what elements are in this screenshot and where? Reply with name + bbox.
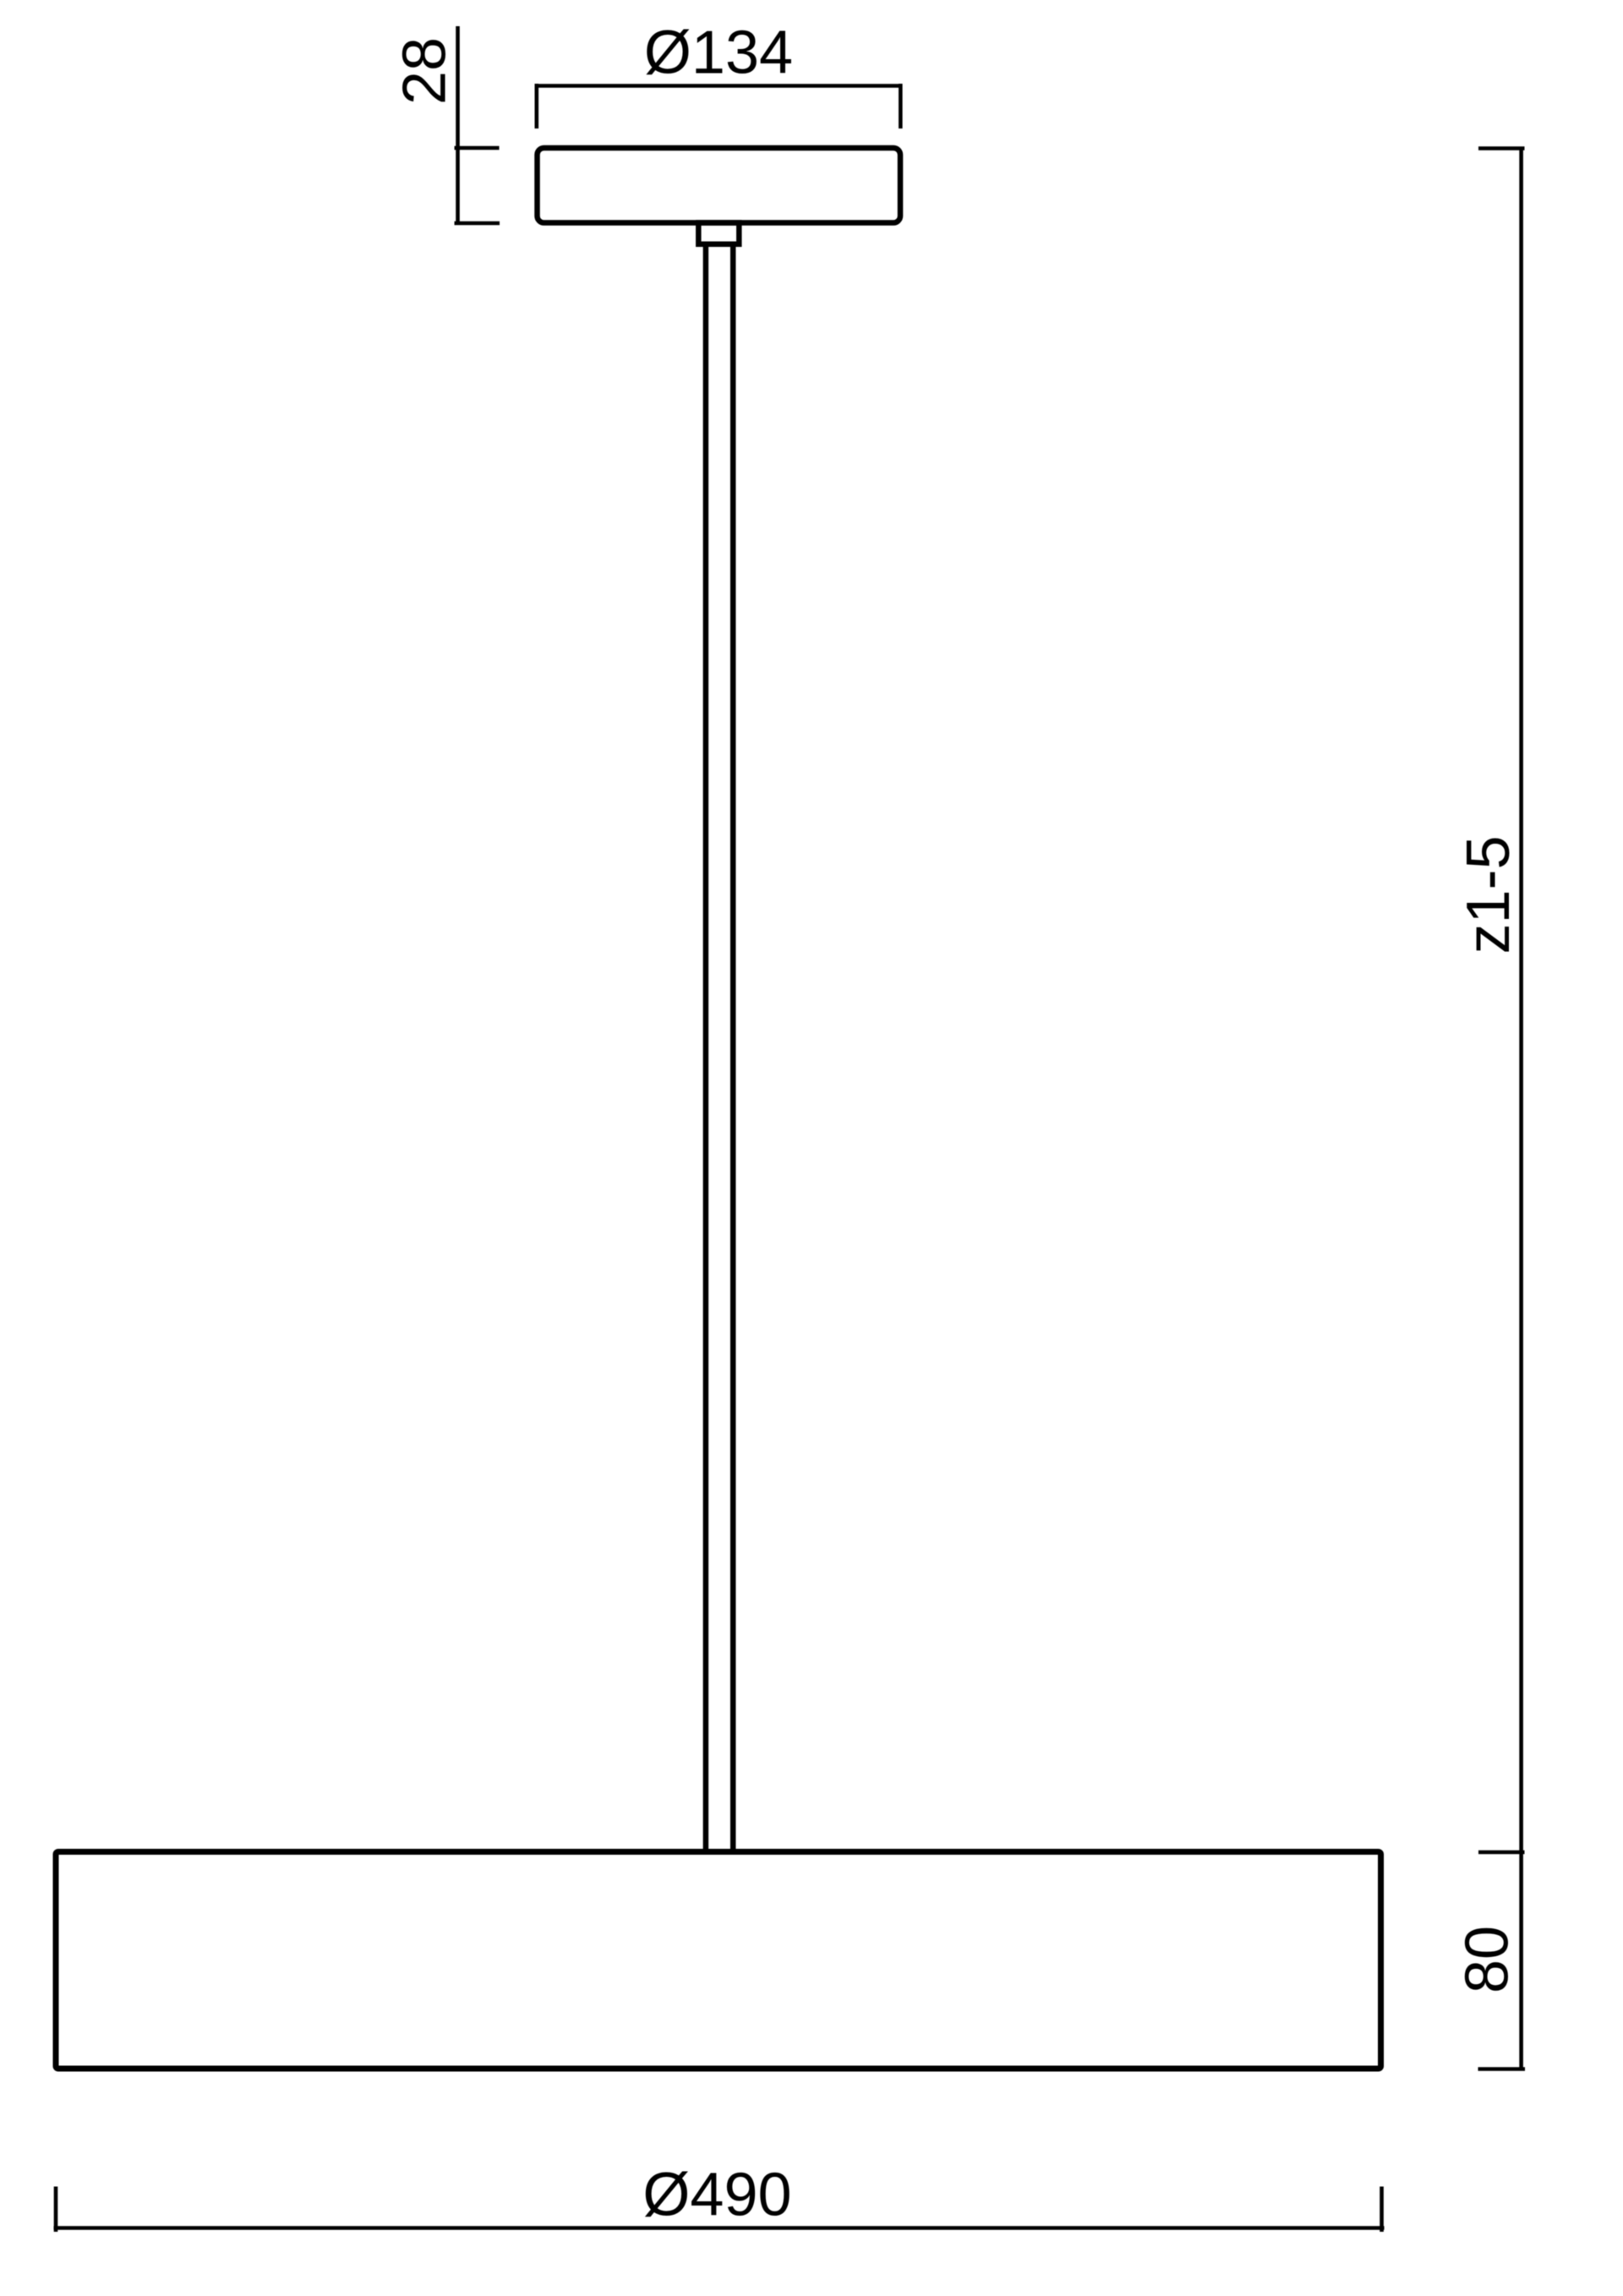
svg-text:80: 80: [1454, 1926, 1522, 1993]
svg-text:z1-5: z1-5: [1455, 835, 1522, 954]
svg-text:Ø490: Ø490: [642, 2162, 791, 2229]
svg-text:Ø134: Ø134: [644, 19, 793, 87]
svg-text:28: 28: [391, 37, 459, 105]
